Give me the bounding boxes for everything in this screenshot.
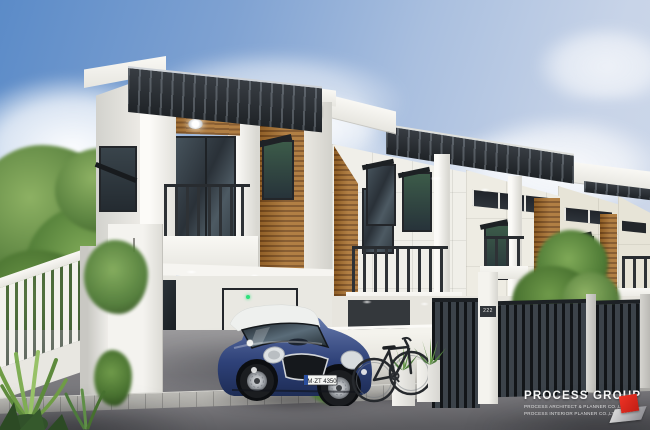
eave-downlight bbox=[420, 302, 429, 306]
gate-post bbox=[640, 294, 650, 388]
downlight bbox=[480, 188, 490, 192]
house-number-plate: 222 bbox=[480, 306, 496, 317]
unit1-awning-window bbox=[262, 140, 294, 200]
tree-foliage bbox=[84, 240, 148, 314]
wheel-hub bbox=[336, 385, 342, 391]
wheel-hub bbox=[254, 378, 260, 384]
downlight bbox=[430, 176, 442, 181]
rendering-scene: 222 bbox=[0, 0, 650, 430]
license-plate: M·ZT 4350 bbox=[304, 375, 337, 385]
gate-post bbox=[586, 294, 596, 392]
unit2-awning-window bbox=[402, 172, 432, 232]
soffit-downlight bbox=[188, 119, 203, 129]
unit2-awning-window bbox=[366, 164, 396, 226]
fog-lamp bbox=[251, 367, 257, 373]
eave-downlight bbox=[186, 270, 197, 274]
logo-red-square bbox=[619, 394, 639, 414]
led-indicator bbox=[246, 295, 250, 299]
folding-gate bbox=[596, 299, 640, 394]
gate-post bbox=[478, 272, 498, 404]
spiky-plants bbox=[0, 346, 146, 430]
cloud bbox=[535, 25, 650, 100]
license-plate-text: M·ZT 4350 bbox=[307, 379, 337, 385]
headlight-inner bbox=[268, 351, 280, 360]
saddle bbox=[384, 347, 394, 348]
folding-gate bbox=[498, 299, 588, 397]
bicycle bbox=[350, 318, 428, 408]
